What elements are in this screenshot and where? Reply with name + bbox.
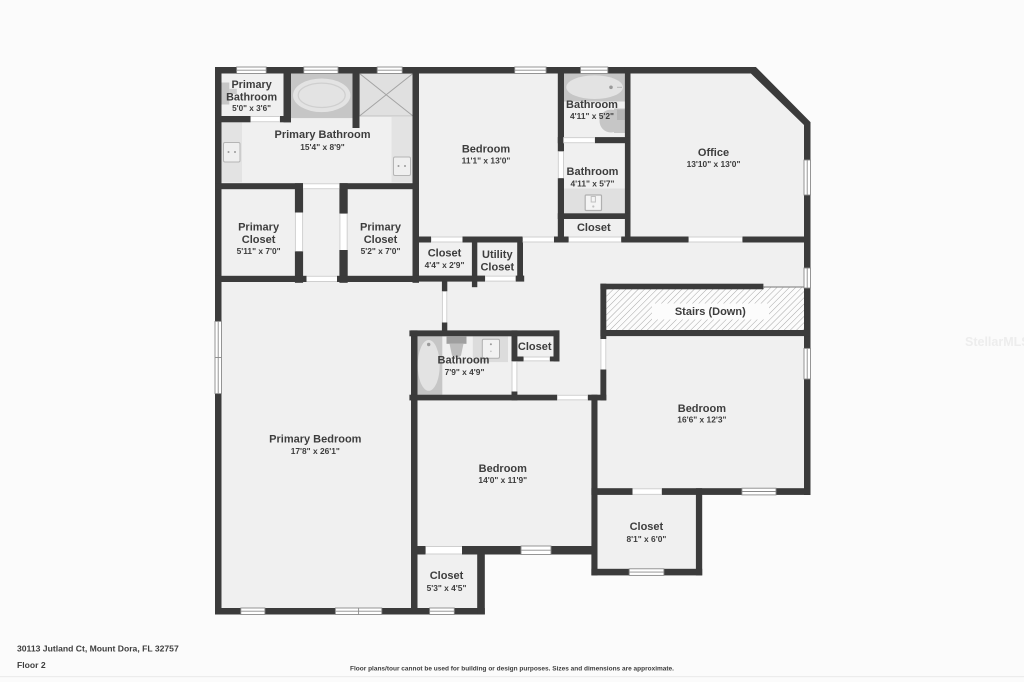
svg-text:5'3" x 4'5": 5'3" x 4'5" — [427, 583, 467, 593]
svg-text:Closet: Closet — [364, 234, 398, 246]
svg-text:Bathroom: Bathroom — [567, 166, 619, 178]
svg-text:5'0" x 3'6": 5'0" x 3'6" — [232, 104, 271, 113]
svg-text:Bedroom: Bedroom — [479, 463, 528, 475]
svg-text:Closet: Closet — [430, 570, 464, 582]
svg-text:4'4" x 2'9": 4'4" x 2'9" — [425, 260, 465, 270]
svg-text:Bedroom: Bedroom — [678, 403, 727, 415]
svg-text:8'1" x 6'0": 8'1" x 6'0" — [626, 534, 666, 544]
svg-text:Closet: Closet — [577, 222, 611, 234]
svg-text:Utility: Utility — [482, 249, 513, 261]
svg-text:Primary Bedroom: Primary Bedroom — [269, 433, 362, 445]
svg-text:4'11" x 5'2": 4'11" x 5'2" — [570, 111, 614, 121]
svg-text:11'1" x 13'0": 11'1" x 13'0" — [462, 156, 511, 166]
svg-text:16'6" x 12'3": 16'6" x 12'3" — [677, 415, 726, 425]
svg-text:Bathroom: Bathroom — [438, 355, 490, 367]
svg-text:17'8" x 26'1": 17'8" x 26'1" — [291, 446, 340, 456]
svg-text:Bathroom: Bathroom — [226, 92, 277, 104]
svg-text:Floor plans/tour cannot be use: Floor plans/tour cannot be used for buil… — [350, 666, 674, 673]
svg-text:5'11" x 7'0": 5'11" x 7'0" — [237, 246, 281, 256]
svg-text:Primary: Primary — [360, 222, 402, 234]
svg-text:Stairs (Down): Stairs (Down) — [675, 306, 746, 318]
svg-text:14'0" x 11'9": 14'0" x 11'9" — [478, 475, 527, 485]
svg-text:Primary: Primary — [238, 222, 280, 234]
svg-text:4'11" x 5'7": 4'11" x 5'7" — [570, 178, 614, 188]
svg-text:Bedroom: Bedroom — [462, 144, 511, 156]
svg-text:Closet: Closet — [480, 262, 514, 274]
svg-text:Primary: Primary — [231, 79, 271, 91]
svg-text:15'4" x 8'9": 15'4" x 8'9" — [300, 142, 345, 152]
svg-text:5'2" x 7'0": 5'2" x 7'0" — [361, 246, 401, 256]
svg-text:Closet: Closet — [518, 341, 552, 353]
svg-text:13'10" x 13'0": 13'10" x 13'0" — [687, 159, 741, 169]
svg-text:Floor 2: Floor 2 — [17, 660, 46, 670]
svg-text:Closet: Closet — [428, 248, 462, 260]
svg-text:Closet: Closet — [242, 234, 276, 246]
svg-text:Office: Office — [698, 147, 729, 159]
svg-text:7'9" x 4'9": 7'9" x 4'9" — [445, 367, 485, 377]
svg-text:Bathroom: Bathroom — [566, 99, 618, 111]
svg-text:StellarMLS: StellarMLS — [965, 335, 1024, 349]
svg-text:30113 Jutland Ct, Mount Dora,: 30113 Jutland Ct, Mount Dora, FL 32757 — [17, 644, 179, 654]
svg-text:Primary Bathroom: Primary Bathroom — [275, 129, 371, 141]
svg-text:Closet: Closet — [630, 521, 664, 533]
